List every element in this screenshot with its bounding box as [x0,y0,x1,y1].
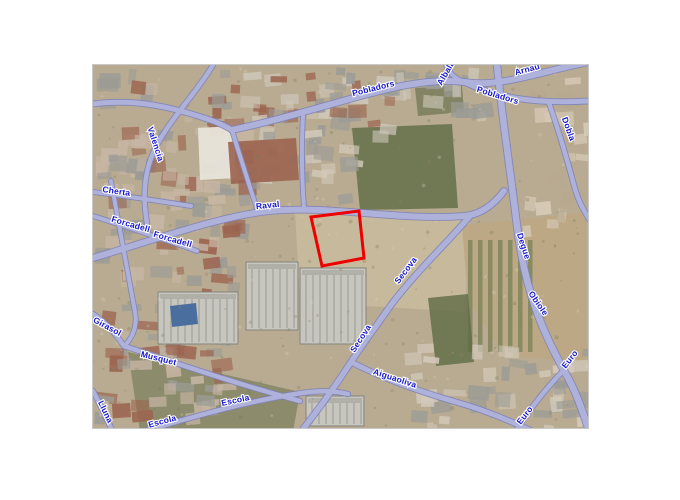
terrain-speckle [308,320,310,322]
building-block [505,347,520,358]
building-block [451,102,469,117]
terrain-speckle [112,126,114,128]
terrain-speckle [257,104,260,107]
crop-rows [508,240,513,352]
terrain-speckle [252,241,254,243]
terrain-speckle [98,114,101,117]
terrain-speckle [317,90,321,94]
terrain-speckle [105,91,107,93]
terrain-speckle [373,353,375,355]
terrain-speckle [259,381,262,384]
terrain-speckle [317,83,319,85]
building-block [131,80,147,95]
terrain-speckle [485,405,487,407]
terrain-speckle [390,201,392,203]
terrain-speckle [503,295,506,298]
terrain-speckle [297,386,301,390]
terrain-speckle [478,220,481,223]
terrain-speckle [442,108,445,111]
terrain-speckle [279,255,282,258]
building-block [565,77,581,85]
building-block [384,96,395,106]
terrain-speckle [421,340,423,342]
terrain-speckle [288,203,292,207]
terrain-speckle [513,302,517,306]
terrain-speckle [375,245,379,249]
terrain-speckle [555,418,558,421]
terrain-speckle [349,220,353,224]
terrain-speckle [452,352,454,354]
terrain-speckle [382,96,385,99]
building-block [200,350,214,356]
terrain-speckle [100,332,103,335]
terrain-speckle [446,378,449,381]
terrain-speckle [351,128,355,132]
building-block [203,257,221,270]
terrain-speckle [439,305,441,307]
terrain-speckle [308,260,311,263]
terrain-speckle [573,219,576,222]
terrain-speckle [139,85,141,87]
terrain-speckle [318,342,321,345]
terrain-speckle [285,352,289,356]
terrain-speckle [433,376,436,379]
terrain-speckle [319,219,322,222]
terrain-speckle [310,301,313,304]
terrain-speckle [576,232,579,235]
terrain-speckle [316,197,320,201]
terrain-speckle [347,310,349,312]
terrain-speckle [542,240,545,243]
terrain-speckle [328,233,331,236]
building-block [117,358,133,370]
building-block [348,105,367,119]
terrain-speckle [288,225,290,227]
terrain-speckle [567,404,569,406]
terrain-speckle [519,312,522,315]
terrain-speckle [530,160,532,162]
terrain-speckle [519,180,521,182]
terrain-speckle [374,407,376,409]
building-block [263,132,275,141]
terrain-speckle [239,67,242,70]
terrain-speckle [538,133,542,137]
building-block [417,343,434,353]
terrain-speckle [291,217,294,220]
building-block [558,181,568,188]
terrain-speckle [113,175,116,178]
building-block [178,135,187,151]
building-block [204,181,221,194]
terrain-speckle [362,259,366,263]
terrain-speckle [289,281,291,283]
terrain-speckle [364,207,366,209]
terrain-speckle [484,275,487,278]
terrain-speckle [560,279,562,281]
building-block [271,76,287,82]
terrain-patch [170,303,198,327]
terrain-speckle [318,223,321,226]
terrain-speckle [204,197,208,201]
crop-rows [498,240,503,352]
terrain-speckle [159,387,162,390]
terrain-speckle [548,411,551,414]
building-block [220,70,230,78]
terrain-speckle [288,328,291,331]
terrain-speckle [330,131,333,134]
terrain-speckle [105,363,107,365]
building-block [209,237,219,248]
terrain-speckle [220,356,223,359]
terrain-speckle [167,206,171,210]
terrain-speckle [153,408,155,410]
building-block [208,195,226,205]
terrain-speckle [293,78,297,82]
terrain-speckle [340,331,343,334]
terrain-speckle [224,308,226,310]
terrain-speckle [117,401,121,405]
terrain-speckle [385,424,387,426]
map-layers: PobladorsPobladorsAlbalatArnauDoblaDegue… [92,56,603,440]
terrain-speckle [487,276,489,278]
terrain-speckle [547,84,550,87]
terrain-speckle [357,179,360,182]
terrain-speckle [511,88,514,91]
building-block [372,130,388,142]
terrain-speckle [244,69,248,73]
terrain-speckle [127,327,130,330]
terrain-speckle [435,101,437,103]
building-block [501,366,510,381]
terrain-speckle [335,233,337,235]
building-block [338,193,354,205]
terrain-speckle [322,412,325,415]
terrain-speckle [238,325,242,329]
terrain-speckle [542,295,544,297]
terrain-speckle [248,171,251,174]
terrain-speckle [212,114,214,116]
terrain-speckle [246,239,250,243]
terrain-speckle [471,118,474,121]
terrain-speckle [282,345,285,348]
building-block [165,344,184,356]
terrain-speckle [102,368,104,370]
building-block [165,141,178,153]
terrain-speckle [506,274,509,277]
terrain-speckle [296,126,299,129]
terrain-speckle [470,104,472,106]
terrain-patch [428,294,474,366]
terrain-speckle [428,70,432,74]
building-block [340,156,359,172]
terrain-speckle [110,368,113,371]
terrain-speckle [554,244,557,247]
terrain-speckle [415,288,417,290]
terrain-speckle [448,353,450,355]
terrain-speckle [448,156,450,158]
terrain-speckle [346,150,348,152]
building-block [411,410,428,423]
building-block [404,352,422,366]
terrain-speckle [474,335,477,338]
terrain-speckle [147,324,150,327]
road-line [302,116,304,208]
terrain-speckle [452,138,456,142]
terrain-speckle [270,414,273,417]
terrain-speckle [401,228,404,231]
terrain-speckle [518,323,522,327]
warehouse-roof [300,268,366,344]
terrain-speckle [281,337,283,339]
building-block [99,73,120,88]
terrain-speckle [235,168,237,170]
crop-rows [478,240,483,352]
building-block [210,225,220,237]
terrain-speckle [423,247,425,249]
terrain-speckle [371,266,374,269]
terrain-speckle [205,272,209,276]
terrain-speckle [176,247,178,249]
terrain-speckle [301,216,303,218]
building-block [524,363,537,376]
terrain-speckle [390,389,393,392]
terrain-speckle [433,422,436,425]
terrain-speckle [398,147,400,149]
terrain-speckle [239,415,243,419]
terrain-speckle [490,351,494,355]
building-block [281,94,299,105]
building-block [495,392,511,408]
terrain-speckle [254,256,256,258]
terrain-speckle [135,368,139,372]
terrain-speckle [288,307,290,309]
terrain-speckle [314,140,316,142]
terrain-speckle [492,290,496,294]
satellite-map: PobladorsPobladorsAlbalatArnauDoblaDegue… [0,0,680,500]
building-block [187,275,202,286]
terrain-speckle [322,198,325,201]
terrain-speckle [312,398,314,400]
terrain-speckle [116,400,118,402]
terrain-speckle [120,349,122,351]
terrain-speckle [328,72,331,75]
terrain-speckle [391,318,394,321]
terrain-speckle [562,163,565,166]
terrain-speckle [381,150,383,152]
terrain-speckle [426,230,430,234]
terrain-speckle [292,176,295,179]
terrain-speckle [264,79,267,82]
terrain-speckle [425,380,427,382]
terrain-speckle [515,268,519,272]
building-block [108,154,118,162]
terrain-speckle [292,258,294,260]
terrain-speckle [525,198,529,202]
terrain-speckle [531,315,534,318]
building-block [150,266,172,278]
terrain-speckle [101,298,105,302]
terrain-speckle [460,353,464,357]
terrain-speckle [451,291,453,293]
terrain-speckle [556,212,558,214]
terrain-speckle [427,119,430,122]
building-block [423,95,444,109]
terrain-speckle [342,142,344,144]
terrain-speckle [294,315,297,318]
terrain-speckle [170,378,172,380]
building-block [238,194,250,206]
terrain-speckle [394,144,396,146]
terrain-speckle [438,156,441,159]
terrain-speckle [479,108,481,110]
terrain-speckle [314,196,316,198]
terrain-speckle [101,95,104,98]
building-block [535,201,552,216]
building-block [472,345,483,360]
terrain-speckle [465,393,468,396]
terrain-speckle [495,376,499,380]
terrain-speckle [576,309,579,312]
terrain-speckle [315,188,318,191]
terrain-speckle [161,334,164,337]
terrain-speckle [260,328,262,330]
terrain-speckle [181,413,184,416]
screenshot-canvas: PobladorsPobladorsAlbalatArnauDoblaDegue… [0,0,680,500]
building-block [548,174,565,182]
building-block [191,376,205,385]
terrain-speckle [377,127,379,129]
terrain-speckle [237,80,240,83]
building-block [176,267,184,276]
terrain-speckle [429,93,433,97]
terrain-speckle [330,357,332,359]
terrain-speckle [449,112,451,114]
terrain-speckle [339,268,342,271]
building-block [336,67,346,75]
terrain-speckle [109,138,111,140]
building-block [231,85,241,94]
terrain-speckle [177,407,180,410]
building-block [131,400,150,412]
building-block [486,386,496,394]
terrain-speckle [401,342,405,346]
building-block [227,266,237,278]
building-block [178,174,189,185]
building-block [212,108,222,119]
terrain-speckle [573,252,575,254]
building-block [582,349,600,358]
terrain-speckle [435,308,439,312]
building-block [146,83,158,95]
terrain-speckle [420,107,422,109]
terrain-speckle [392,247,395,250]
building-block [472,102,494,119]
building-block [339,144,360,154]
building-block [149,396,167,407]
building-block [164,383,176,394]
terrain-speckle [450,406,454,410]
terrain-speckle [159,79,161,81]
terrain-speckle [124,389,126,391]
building-block [130,360,152,370]
terrain-speckle [422,184,426,188]
building-block [305,72,316,80]
crop-rows [488,240,493,352]
building-block [306,91,316,102]
terrain-speckle [427,160,430,163]
terrain-speckle [250,278,253,281]
terrain-speckle [385,343,388,346]
building-block [543,425,554,440]
terrain-speckle [399,200,403,204]
terrain-speckle [375,298,378,301]
building-block [524,196,536,211]
building-block [180,392,194,404]
terrain-speckle [158,297,162,301]
terrain-speckle [555,335,559,339]
terrain-speckle [494,347,496,349]
terrain-speckle [118,297,121,300]
terrain-speckle [249,320,253,324]
terrain-speckle [228,293,231,296]
terrain-speckle [360,110,362,112]
warehouse-roof [158,292,238,344]
building-block [346,73,356,85]
terrain-speckle [190,424,192,426]
building-block [547,219,559,228]
terrain-speckle [576,227,578,229]
terrain-speckle [439,352,442,355]
building-block [112,403,131,418]
terrain-speckle [379,71,382,74]
terrain-speckle [429,266,432,269]
building-block [443,389,465,396]
terrain-speckle [490,231,494,235]
building-block [212,94,225,109]
building-block [483,367,497,382]
terrain-speckle [349,147,351,149]
terrain-speckle [576,157,578,159]
terrain-speckle [316,314,319,317]
terrain-speckle [205,210,208,213]
terrain-speckle [169,224,172,227]
terrain-patch [352,124,458,210]
building-block [452,84,461,98]
terrain-speckle [146,331,148,333]
terrain-speckle [290,119,292,121]
building-block [329,107,347,118]
terrain-speckle [97,339,101,343]
terrain-speckle [185,353,188,356]
terrain-speckle [256,155,260,159]
terrain-speckle [416,331,419,334]
building-block [196,395,215,407]
building-block [439,416,450,425]
terrain-speckle [178,306,181,309]
warehouse-roof [246,262,298,330]
